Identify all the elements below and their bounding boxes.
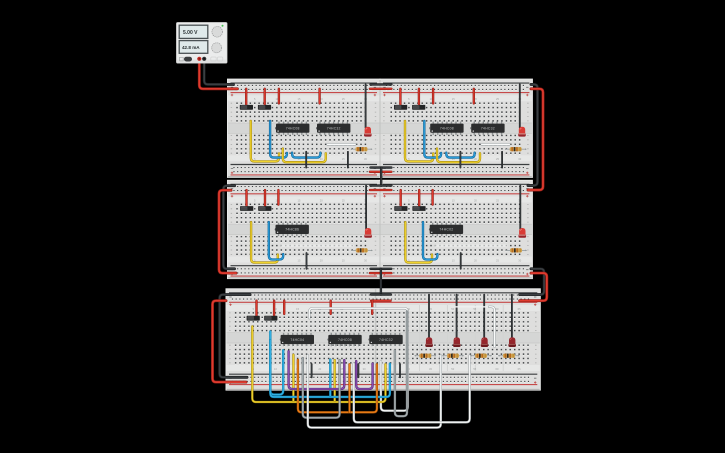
svg-text:74HC04: 74HC04 [290,338,304,342]
svg-text:74HC08: 74HC08 [286,127,300,131]
svg-text:74HC32: 74HC32 [379,338,393,342]
svg-text:5.00 V: 5.00 V [183,30,198,36]
svg-text:42.8 mA: 42.8 mA [182,45,200,50]
svg-text:74HC86: 74HC86 [285,228,299,232]
svg-text:74HC02: 74HC02 [439,228,453,232]
svg-text:74HC32: 74HC32 [327,127,341,131]
svg-text:74HC32: 74HC32 [481,127,495,131]
svg-text:74HC08: 74HC08 [338,338,352,342]
svg-text:74HC08: 74HC08 [440,127,454,131]
